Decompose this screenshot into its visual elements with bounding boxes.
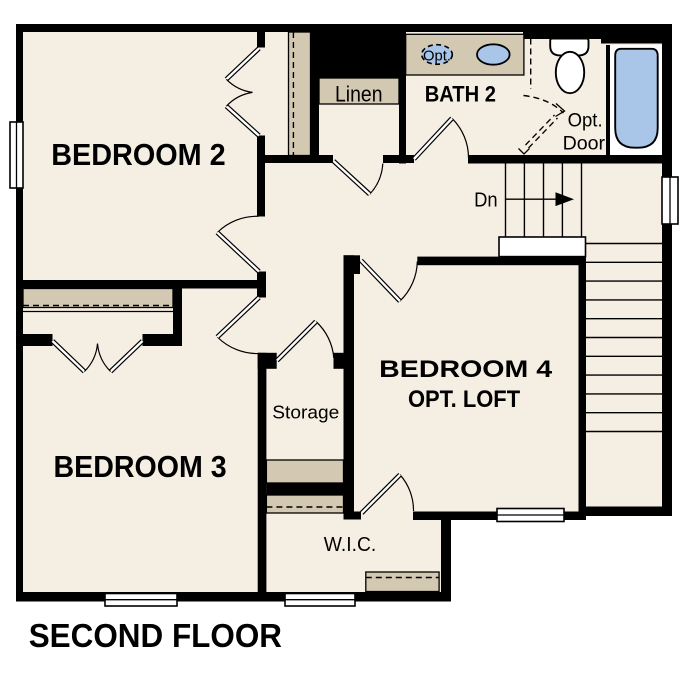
- svg-text:Linen: Linen: [335, 82, 383, 107]
- svg-text:Storage: Storage: [272, 403, 339, 423]
- svg-text:W.I.C.: W.I.C.: [324, 534, 376, 556]
- svg-text:SECOND FLOOR: SECOND FLOOR: [29, 617, 282, 654]
- svg-text:Door: Door: [563, 134, 606, 155]
- svg-text:BEDROOM 3: BEDROOM 3: [54, 449, 227, 484]
- svg-text:BEDROOM 2: BEDROOM 2: [51, 137, 226, 172]
- svg-text:BATH 2: BATH 2: [425, 82, 496, 107]
- svg-text:Dn: Dn: [474, 189, 498, 211]
- svg-text:Opt.: Opt.: [568, 111, 603, 132]
- svg-text:OPT. LOFT: OPT. LOFT: [408, 386, 520, 413]
- svg-text:BEDROOM 4: BEDROOM 4: [379, 356, 553, 383]
- svg-text:Opt.: Opt.: [423, 48, 451, 65]
